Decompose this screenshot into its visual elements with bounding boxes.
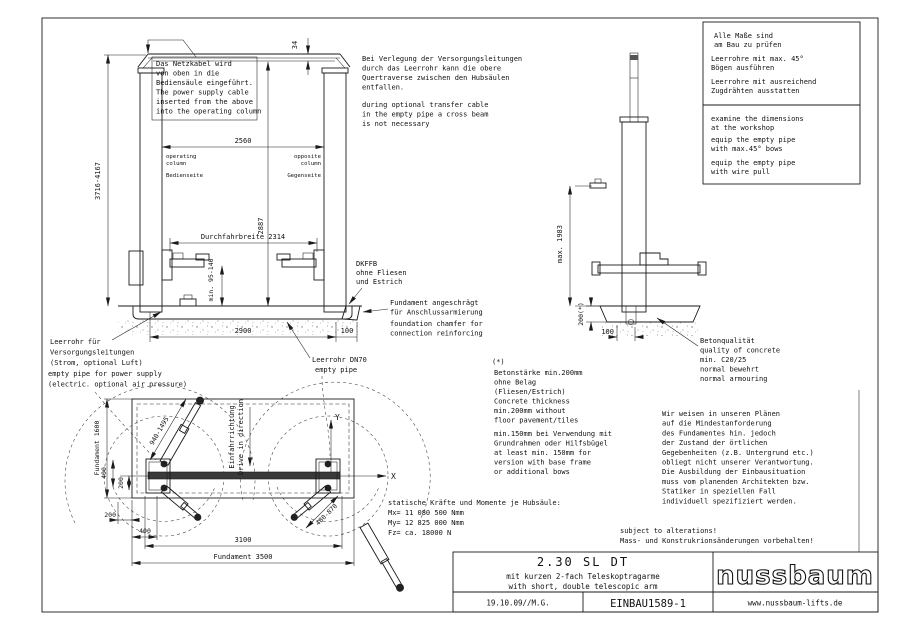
dim-drive-width: Durchfahrbreite 2314 (201, 233, 285, 241)
supply-pipe-note: (Strom, optional Luft) (50, 359, 143, 367)
operating-column-label: column (166, 161, 186, 167)
info-de-line: Leerrohre mit ausreichend (711, 78, 816, 86)
date-author: 19.10.09//M.G. (486, 599, 549, 608)
responsibility-line: Die Ausbildung der Einbausituation (662, 468, 805, 476)
concrete-note-line: Betonqualität (700, 337, 755, 345)
forces-line: Mx= 11 080 500 Nmm (388, 509, 464, 517)
supply-pipe-note: empty pipe for power supply (48, 370, 162, 378)
cable-note-line: Das Netzkabel wird (156, 60, 232, 68)
opposite-column-label: Gegenseite (287, 173, 321, 179)
operating-column-label: operating (166, 154, 196, 160)
supply-pipe-note: (electric. optional air pressure) (48, 381, 187, 389)
responsibility-line: Gegebenheiten (z.B. Untergrund etc.) (662, 449, 814, 457)
floor-pad (180, 295, 196, 306)
opposite-column (324, 73, 346, 312)
crossbeam-note-line: Quertraverse zwischen den Hubsäulen (362, 74, 510, 82)
dim-plate-v400: 400 (100, 467, 108, 479)
cable-note-line: The power supply cable (156, 89, 249, 97)
drawing-number: EINBAU1589-1 (610, 598, 686, 610)
dim-short-arm: 480-870 (314, 502, 339, 527)
crossbeam-note-line: during optional transfer cable (362, 101, 488, 109)
side-foundation (600, 306, 700, 322)
dkffb-note: und Estrich (356, 278, 402, 286)
alterations-line: Mass- und Konstrukrionsänderungen vorbeh… (620, 537, 814, 545)
title-block: 2.30 SL DT mit kurzen 2-fach Teleskoptra… (453, 552, 878, 612)
concrete-note-line: quality of concrete (700, 347, 780, 355)
info-de-line: am Bau zu prüfen (714, 41, 781, 49)
info-en-line: equip the empty pipe (711, 159, 795, 167)
chamfer-note: Fundament angeschrägt (390, 299, 479, 307)
thickness-note-line: Grundrahmen oder Hilfsbügel (494, 440, 608, 448)
thickness-note-line: floor pavement/tiles (494, 417, 578, 425)
operating-column-label: Bedienseite (166, 173, 204, 179)
dim-slab-depth: 200(*) (577, 302, 585, 325)
thickness-note-marker: (*) (492, 358, 505, 366)
thickness-note-line: at least min. 150mm for (494, 449, 591, 457)
cable-note-line: von oben in die (156, 70, 219, 78)
right-carriage (277, 250, 324, 280)
left-carriage (162, 250, 209, 280)
dim-edge-offset: 100 (341, 327, 354, 335)
info-en-line: with max.45° bows (711, 145, 783, 153)
dkffb-note: ohne Fliesen (356, 269, 407, 277)
responsibility-note: Wir weisen in unseren Plänen auf die Min… (662, 410, 814, 505)
forces-line: My= 12 825 000 Nmm (388, 519, 464, 527)
supply-pipe-note: Leerrohr für (50, 338, 101, 346)
crossbeam-note-line: Bei Verlegung der Versorgungsleitungen (362, 55, 522, 63)
side-view: max. 1983 200(*) 100 Betonqualität quali… (556, 53, 780, 383)
cable-note-line: Bediensäule eingeführt. (156, 79, 253, 87)
forces-line: Fz= ca. 18000 N (388, 529, 451, 537)
opposite-column-label: opposite (294, 154, 322, 160)
axis-y-label: Y (335, 413, 340, 422)
responsibility-line: der Zustand der örtlichen (662, 439, 767, 447)
dim-beam-offset: 34 (291, 41, 299, 49)
concrete-note-line: normal bewehrt (700, 366, 759, 374)
chamfer-note: foundation chamfer for (390, 320, 483, 328)
technical-drawing-sheet: Das Netzkabel wird von oben in die Bedie… (0, 0, 900, 619)
long-arm-left (160, 395, 206, 465)
side-arm (598, 265, 700, 273)
forces-line: statische Kräfte und Momente je Hubsäule… (388, 499, 561, 507)
info-en-line: at the workshop (711, 124, 774, 132)
control-box (129, 251, 143, 285)
thickness-note-line: or additional bows (494, 468, 570, 476)
crossbeam-note-line: in the empty pipe a cross beam (362, 111, 488, 119)
dim-total-height: 3716-4167 (94, 162, 102, 200)
responsibility-line: Wir weisen in unseren Plänen (662, 410, 780, 418)
thickness-note-line: min.150mm bei Verwendung mit (494, 430, 612, 438)
plan-view: X Y (65, 376, 430, 593)
dkffb-note: DKFFB (356, 260, 377, 268)
responsibility-line: individuell spezifiziert werden. (662, 497, 797, 505)
model-designation: 2.30 SL DT (537, 555, 629, 569)
nussbaum-logo: nussbaum (716, 561, 874, 591)
thickness-note-line: version with base frame (494, 459, 591, 467)
dim-max-height: max. 1983 (556, 225, 564, 263)
info-de-line: Leerrohre mit max. 45° (711, 55, 804, 63)
crossbeam-note-line: is not necessary (362, 120, 429, 128)
subtitle-de: mit kurzen 2-fach Teleskoptragarme (506, 572, 660, 581)
crossbeam-note-line: durch das Leerrohr kann die obere (362, 65, 501, 73)
responsibility-line: muss vom planenden Architekten bzw. (662, 478, 810, 486)
chamfer-note: für Anschlussarmierung (390, 309, 483, 317)
right-column-cap (322, 68, 348, 73)
forces-note: statische Kräfte und Momente je Hubsäule… (388, 499, 561, 537)
dim-edge-h200: 200 (104, 511, 116, 519)
dim-pad-height: min. 95-140 (207, 258, 215, 301)
cable-note-line: into the operating column (156, 108, 261, 116)
info-en-line: with wire pull (711, 168, 770, 176)
dim-foundation-width-plan: Fundament 3500 (213, 553, 272, 561)
dim-clear-height: 2887 (257, 218, 265, 235)
thickness-note-line: Concrete thickness (494, 398, 570, 406)
info-box: Alle Maße sind am Bau zu prüfen Leerrohr… (703, 22, 860, 184)
alterations-note: subject to alterations! Mass- und Konstr… (620, 527, 814, 545)
dim-foundation-width: 2900 (235, 327, 252, 335)
subtitle-en: with short, double telescopic arm (508, 582, 657, 591)
alterations-line: subject to alterations! (620, 527, 717, 535)
axis-x-label: X (391, 472, 396, 481)
chamfer-note: connection reinforcing (390, 330, 483, 338)
info-en-line: equip the empty pipe (711, 136, 795, 144)
drive-direction-de: Einfahrrichtung (228, 405, 236, 468)
thickness-note-line: min.200mm without (494, 407, 566, 415)
short-arm-left (161, 486, 203, 523)
info-de-line: Zugdrähten ausstatten (711, 87, 800, 95)
concrete-note-line: normal armouring (700, 375, 767, 383)
dn70-note: Leerrohr DN70 (312, 356, 367, 364)
crossbeam-note: Bei Verlegung der Versorgungsleitungen d… (362, 55, 522, 128)
dim-pipe-offset: 100 (601, 328, 614, 336)
info-en-line: examine the dimensions (711, 115, 804, 123)
thickness-note-line: Betonstärke min.200mm (494, 369, 583, 377)
foundation-slab-section (133, 306, 352, 319)
dim-plate-v200: 200 (117, 477, 125, 489)
info-de-line: Alle Maße sind (714, 32, 773, 40)
supply-pipe-note: Versorgungsleitungen (50, 349, 134, 357)
cable-note-line: inserted from the above (156, 98, 253, 106)
opposite-column-label: column (301, 161, 321, 167)
responsibility-line: auf die Mindestanforderung (662, 420, 772, 428)
dim-column-distance: 3100 (235, 536, 252, 544)
thickness-note-line: ohne Belag (494, 379, 536, 387)
dim-column-spacing: 2560 (235, 137, 252, 145)
info-de-line: Bögen ausführen (711, 64, 774, 72)
responsibility-line: des Fundamentes hin. jedoch (662, 429, 776, 437)
drawing-canvas: Das Netzkabel wird von oben in die Bedie… (0, 0, 900, 619)
drive-direction-en: Drive in direction (237, 399, 245, 475)
responsibility-line: obliegt nicht unserer Verantwortung. (662, 459, 814, 467)
thickness-note: (*) Betonstärke min.200mm ohne Belag (Fl… (492, 358, 612, 476)
website-url: www.nussbaum-lifts.de (748, 599, 843, 608)
thickness-note-line: (Fliesen/Estrich) (494, 388, 566, 396)
concrete-note-line: min. C20/25 (700, 356, 746, 364)
dn70-note: empty pipe (315, 366, 357, 374)
crossbeam-note-line: entfallen. (362, 84, 404, 92)
front-view: Das Netzkabel wird von oben in die Bedie… (48, 38, 483, 389)
responsibility-line: Statiker in speziellen Fall (662, 488, 776, 496)
side-column (622, 122, 646, 312)
column-extension-rod (630, 53, 638, 122)
